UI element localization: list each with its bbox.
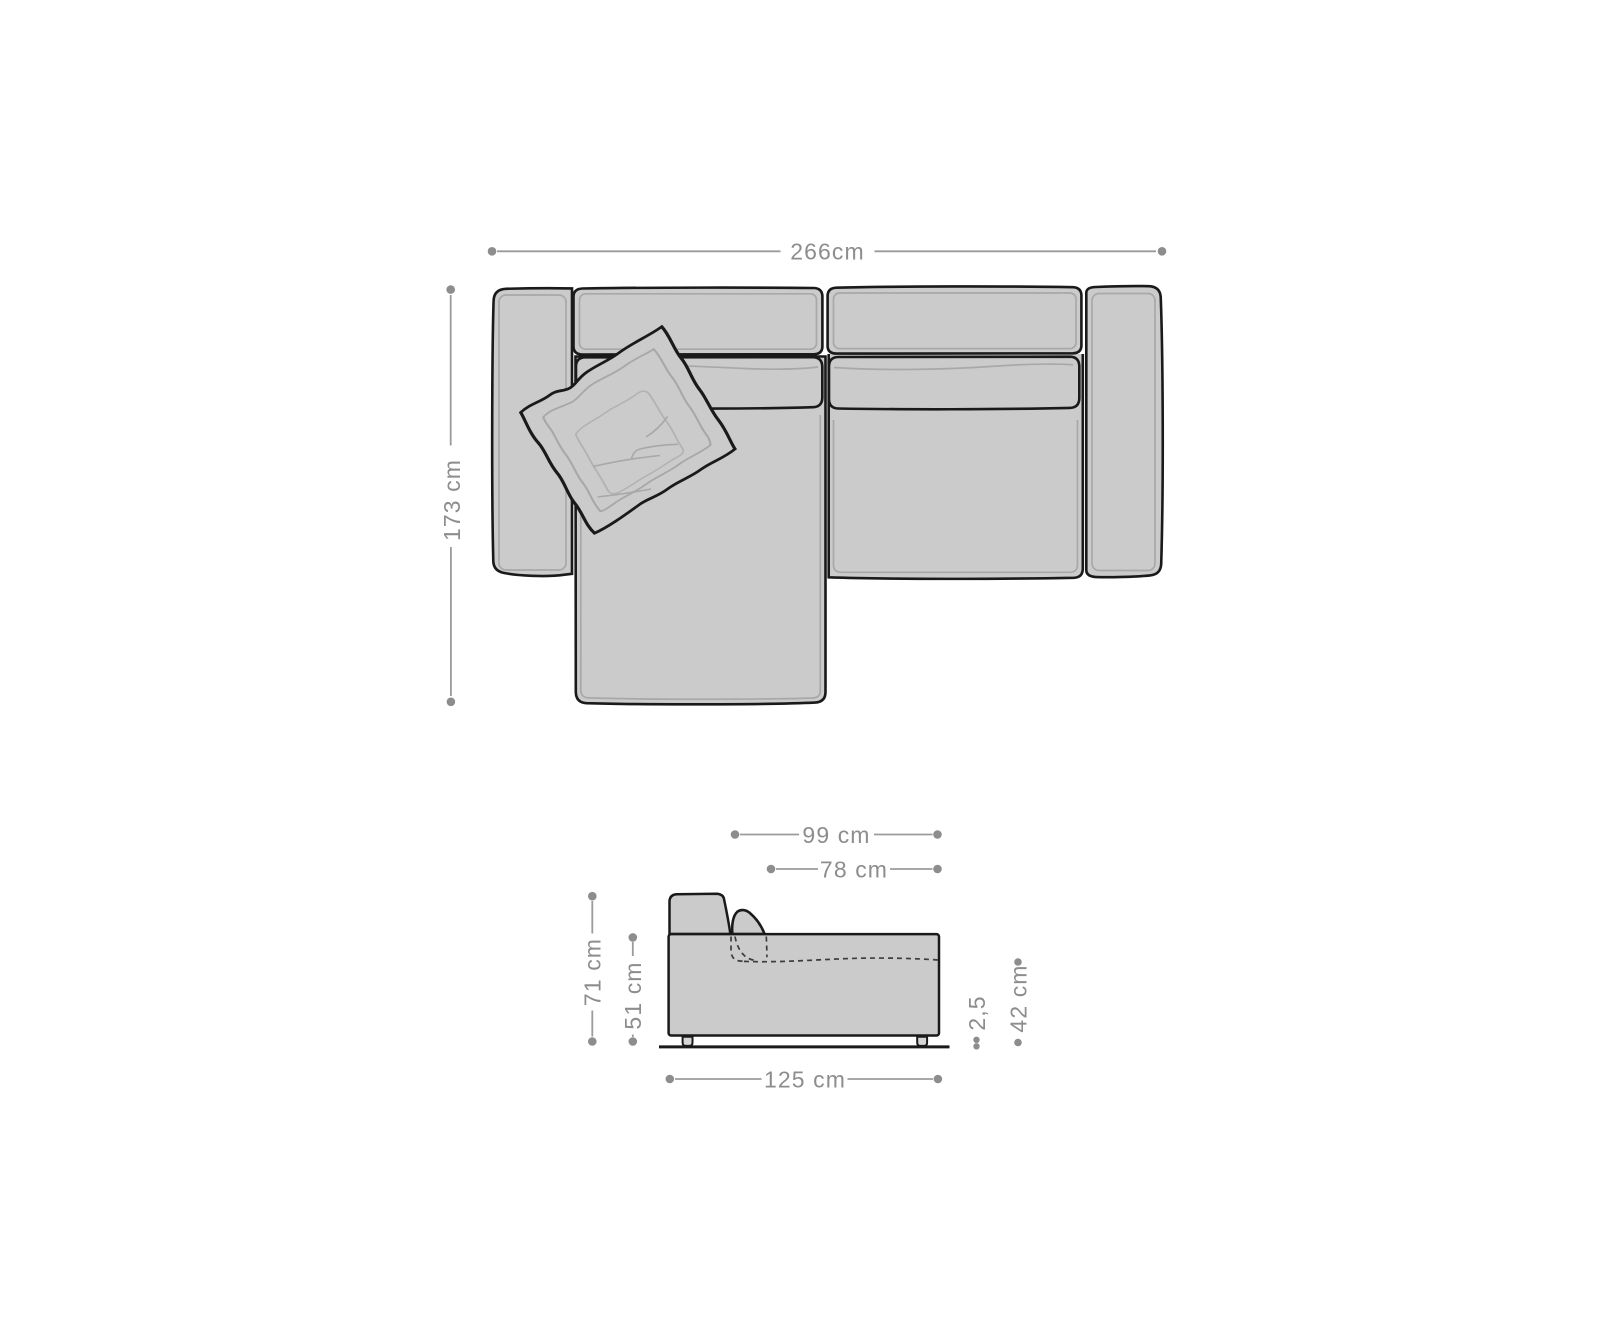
svg-text:78 cm: 78 cm [820,856,888,882]
svg-text:71 cm: 71 cm [580,938,606,1006]
svg-text:42 cm: 42 cm [1005,964,1031,1032]
svg-text:125 cm: 125 cm [764,1066,846,1092]
svg-text:266cm: 266cm [790,239,865,265]
svg-text:173 cm: 173 cm [439,459,465,541]
svg-text:2,5: 2,5 [964,995,990,1030]
svg-text:51 cm: 51 cm [620,961,646,1029]
svg-text:99 cm: 99 cm [802,822,870,848]
